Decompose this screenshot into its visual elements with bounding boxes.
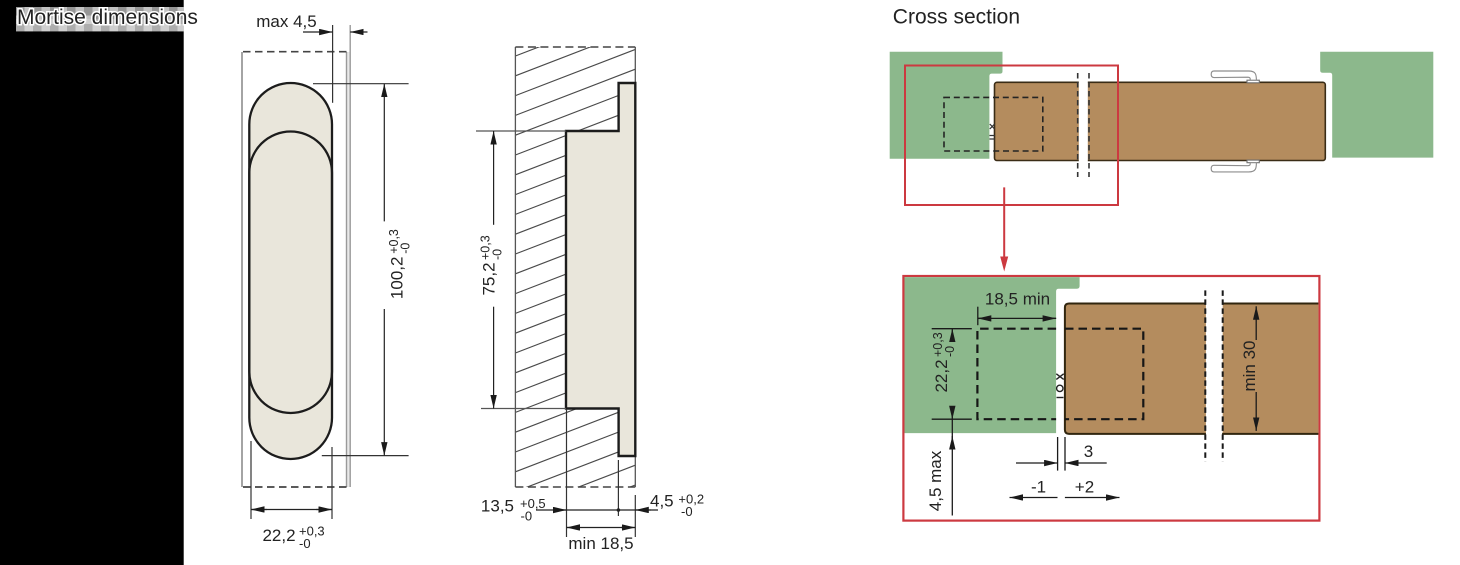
svg-text:22,2: 22,2 (262, 526, 295, 545)
svg-text:4,5 max: 4,5 max (926, 450, 945, 511)
svg-text:Cross section: Cross section (893, 5, 1020, 28)
svg-text:18,5 min: 18,5 min (985, 290, 1050, 309)
svg-text:13,5: 13,5 (481, 497, 514, 516)
svg-text:100,2: 100,2 (388, 257, 407, 300)
svg-text:22,2: 22,2 (932, 359, 951, 392)
svg-text:-1: -1 (1031, 478, 1046, 497)
svg-text:Mortise dimensions: Mortise dimensions (17, 6, 198, 29)
svg-text:75,2: 75,2 (480, 262, 499, 295)
svg-text:min 30: min 30 (1240, 340, 1259, 391)
svg-text:-0: -0 (681, 504, 693, 519)
svg-text:3: 3 (1084, 442, 1093, 461)
svg-text:4,5: 4,5 (650, 492, 674, 511)
svg-text:-0: -0 (491, 249, 505, 260)
svg-text:max 4,5: max 4,5 (256, 12, 316, 31)
svg-text:-0: -0 (399, 243, 413, 254)
svg-text:-0: -0 (299, 536, 311, 551)
svg-text:min 18,5: min 18,5 (568, 534, 633, 553)
svg-text:-0: -0 (521, 509, 533, 524)
svg-text:+2: +2 (1075, 478, 1094, 497)
svg-text:-0: -0 (943, 346, 957, 357)
